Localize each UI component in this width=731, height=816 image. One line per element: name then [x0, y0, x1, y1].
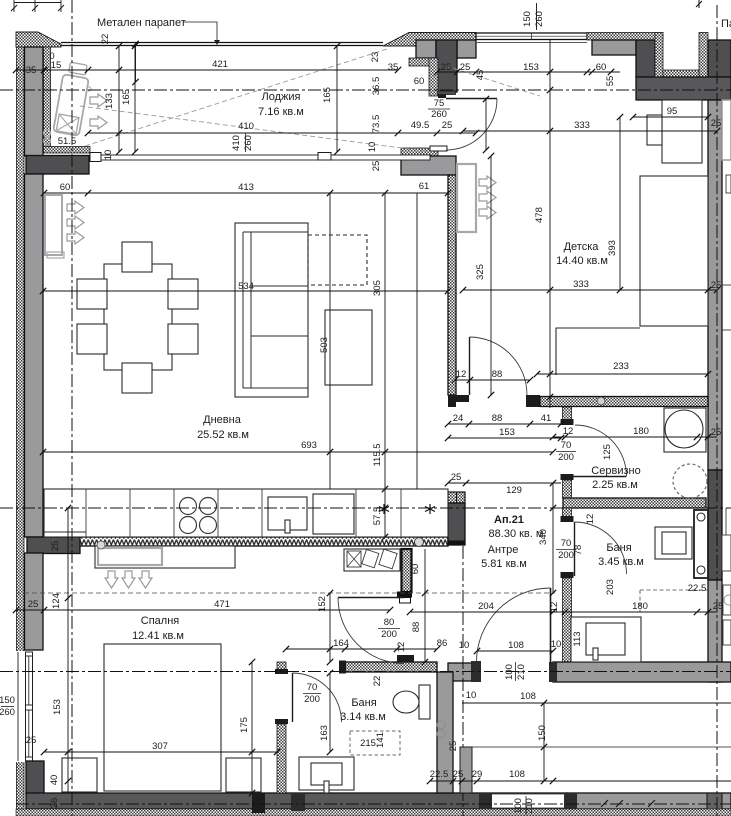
svg-text:23: 23 — [370, 52, 381, 63]
svg-text:7.16 кв.м: 7.16 кв.м — [258, 106, 304, 118]
svg-text:12: 12 — [456, 369, 467, 380]
svg-text:25: 25 — [448, 741, 459, 752]
svg-text:204: 204 — [478, 601, 494, 612]
svg-text:410: 410 — [238, 121, 254, 132]
svg-text:Лоджия: Лоджия — [262, 91, 301, 103]
svg-text:165: 165 — [121, 89, 132, 105]
svg-text:175: 175 — [239, 717, 250, 733]
svg-text:15: 15 — [51, 60, 62, 71]
svg-text:25: 25 — [26, 735, 37, 746]
svg-text:22.5: 22.5 — [688, 583, 707, 594]
svg-text:60: 60 — [596, 62, 607, 73]
svg-text:88: 88 — [411, 622, 422, 633]
svg-text:45: 45 — [475, 70, 486, 81]
svg-text:61: 61 — [419, 181, 430, 192]
svg-text:150: 150 — [0, 695, 15, 706]
svg-text:3.45 кв.м: 3.45 кв.м — [598, 556, 644, 568]
svg-text:410: 410 — [231, 135, 242, 151]
svg-text:478: 478 — [534, 207, 545, 223]
svg-text:86: 86 — [437, 638, 448, 649]
svg-text:200: 200 — [381, 629, 397, 640]
svg-text:233: 233 — [613, 361, 629, 372]
svg-text:10: 10 — [103, 150, 114, 161]
svg-text:Детска: Детска — [564, 241, 600, 253]
svg-text:25: 25 — [711, 427, 722, 438]
svg-text:24: 24 — [453, 413, 464, 424]
svg-text:108: 108 — [520, 691, 536, 702]
svg-text:503: 503 — [319, 337, 330, 353]
svg-text:25: 25 — [453, 769, 464, 780]
svg-text:153: 153 — [523, 62, 539, 73]
svg-text:125: 125 — [602, 444, 613, 460]
svg-text:325: 325 — [475, 264, 486, 280]
svg-text:12: 12 — [563, 426, 574, 437]
svg-text:25: 25 — [711, 280, 722, 291]
svg-text:Сервизно: Сервизно — [591, 465, 640, 477]
svg-text:153: 153 — [499, 427, 515, 438]
svg-text:22: 22 — [372, 676, 383, 687]
svg-text:Метален парапет: Метален парапет — [97, 17, 186, 29]
svg-text:180: 180 — [632, 601, 648, 612]
svg-text:393: 393 — [607, 240, 618, 256]
svg-text:108: 108 — [509, 769, 525, 780]
svg-text:260: 260 — [0, 707, 15, 718]
svg-text:25: 25 — [28, 599, 39, 610]
svg-text:25: 25 — [711, 118, 722, 129]
svg-text:25: 25 — [713, 601, 724, 612]
svg-text:88.30 кв. м: 88.30 кв. м — [489, 528, 544, 540]
svg-text:203: 203 — [605, 579, 616, 595]
svg-text:260: 260 — [431, 109, 447, 120]
svg-text:36.5: 36.5 — [371, 77, 382, 96]
svg-text:35: 35 — [26, 65, 37, 76]
svg-text:210: 210 — [516, 664, 527, 680]
svg-text:10: 10 — [551, 639, 562, 650]
svg-text:Ап.21: Ап.21 — [494, 514, 524, 526]
svg-text:22: 22 — [100, 34, 111, 45]
svg-text:124: 124 — [51, 593, 62, 609]
svg-text:Баня: Баня — [606, 542, 631, 554]
svg-text:12: 12 — [585, 514, 596, 525]
svg-text:413: 413 — [238, 182, 254, 193]
svg-text:305: 305 — [372, 280, 383, 296]
svg-text:307: 307 — [152, 741, 168, 752]
svg-text:70: 70 — [561, 538, 572, 549]
svg-text:150: 150 — [522, 11, 533, 27]
svg-text:14.40 кв.м: 14.40 кв.м — [556, 255, 608, 267]
svg-text:80: 80 — [384, 617, 395, 628]
svg-text:163: 163 — [319, 725, 330, 741]
svg-text:Баня: Баня — [351, 697, 376, 709]
svg-text:25: 25 — [441, 62, 452, 73]
svg-text:333: 333 — [574, 120, 590, 131]
svg-text:200: 200 — [558, 550, 574, 561]
svg-text:40: 40 — [49, 775, 60, 786]
svg-text:12.41 кв.м: 12.41 кв.м — [132, 630, 184, 642]
svg-text:180: 180 — [633, 426, 649, 437]
svg-text:100: 100 — [504, 664, 515, 680]
svg-text:164: 164 — [333, 638, 349, 649]
svg-text:70: 70 — [561, 440, 572, 451]
svg-text:165: 165 — [322, 87, 333, 103]
svg-text:3.14 кв.м: 3.14 кв.м — [340, 711, 386, 723]
svg-text:200: 200 — [558, 452, 574, 463]
svg-text:471: 471 — [214, 599, 230, 610]
svg-text:25: 25 — [460, 62, 471, 73]
svg-text:141: 141 — [375, 732, 386, 748]
svg-text:Дневна: Дневна — [203, 414, 242, 426]
svg-text:129: 129 — [506, 485, 522, 496]
svg-text:49.5: 49.5 — [411, 120, 430, 131]
svg-text:534: 534 — [238, 281, 254, 292]
svg-text:693: 693 — [301, 440, 317, 451]
svg-text:333: 333 — [573, 279, 589, 290]
svg-text:421: 421 — [212, 59, 228, 70]
svg-text:200: 200 — [304, 694, 320, 705]
svg-text:12: 12 — [549, 602, 560, 613]
svg-text:5.81 кв.м: 5.81 кв.м — [481, 558, 527, 570]
svg-text:29: 29 — [472, 769, 483, 780]
svg-text:25: 25 — [50, 541, 61, 552]
svg-text:88: 88 — [492, 413, 503, 424]
svg-text:10: 10 — [466, 690, 477, 701]
svg-text:108: 108 — [508, 640, 524, 651]
svg-text:260: 260 — [243, 135, 254, 151]
svg-text:70: 70 — [307, 682, 318, 693]
svg-text:51.5: 51.5 — [58, 136, 77, 147]
svg-text:10: 10 — [367, 142, 378, 153]
svg-text:55: 55 — [605, 76, 616, 87]
svg-text:260: 260 — [534, 11, 545, 27]
svg-text:41: 41 — [541, 413, 552, 424]
svg-text:153: 153 — [52, 699, 63, 715]
svg-text:12: 12 — [396, 642, 407, 653]
svg-text:57.5: 57.5 — [372, 507, 383, 526]
svg-text:26: 26 — [49, 798, 60, 809]
svg-text:25.52 кв.м: 25.52 кв.м — [197, 429, 249, 441]
svg-text:25: 25 — [442, 120, 453, 131]
svg-text:215: 215 — [360, 738, 376, 749]
svg-text:88: 88 — [492, 369, 503, 380]
svg-text:113: 113 — [572, 631, 583, 646]
svg-text:2.25 кв.м: 2.25 кв.м — [592, 479, 638, 491]
svg-text:Па: Па — [721, 18, 731, 30]
svg-text:60: 60 — [60, 182, 71, 193]
svg-text:35: 35 — [388, 62, 399, 73]
svg-text:75: 75 — [434, 98, 445, 109]
svg-text:60: 60 — [410, 564, 421, 575]
svg-text:Спалня: Спалня — [141, 615, 180, 627]
svg-text:10: 10 — [459, 640, 470, 651]
svg-text:100: 100 — [513, 798, 524, 814]
svg-text:73.5: 73.5 — [371, 115, 382, 134]
svg-text:78: 78 — [573, 545, 584, 556]
svg-text:25: 25 — [451, 472, 462, 483]
svg-text:150: 150 — [537, 725, 548, 741]
svg-text:25: 25 — [371, 161, 382, 172]
svg-text:115.5: 115.5 — [372, 443, 383, 466]
svg-text:Антре: Антре — [488, 544, 519, 556]
svg-text:60: 60 — [414, 76, 425, 87]
svg-text:133: 133 — [104, 93, 115, 109]
svg-text:95: 95 — [667, 106, 678, 117]
svg-text:152: 152 — [317, 596, 328, 612]
svg-text:22.5: 22.5 — [430, 769, 449, 780]
